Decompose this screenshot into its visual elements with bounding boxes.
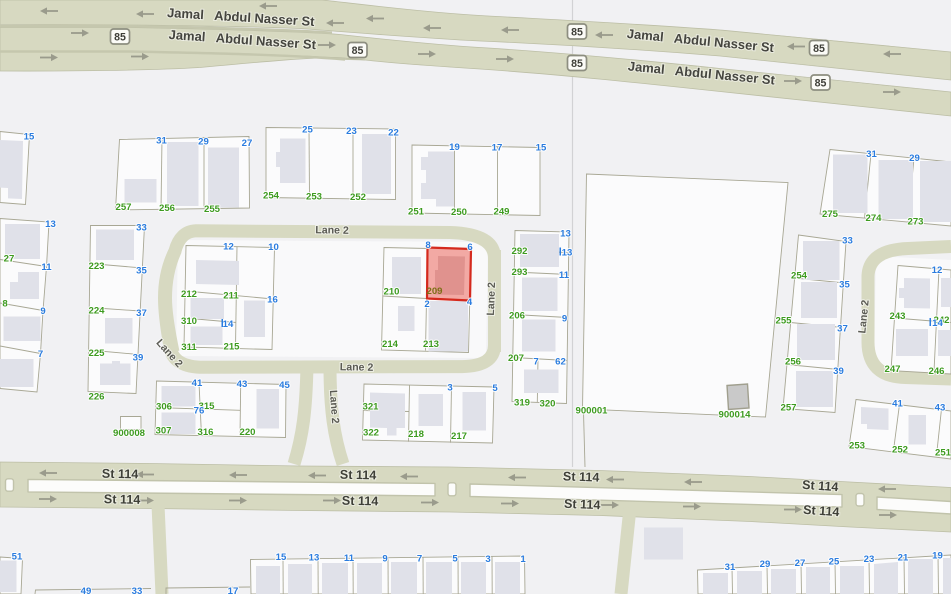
svg-text:293: 293: [511, 267, 527, 278]
svg-text:8: 8: [2, 299, 8, 310]
svg-text:215: 215: [223, 342, 240, 353]
svg-text:23: 23: [346, 126, 357, 137]
svg-text:220: 220: [239, 427, 255, 438]
svg-text:292: 292: [511, 246, 527, 257]
svg-text:35: 35: [136, 266, 147, 277]
svg-text:13: 13: [562, 248, 573, 259]
svg-text:85: 85: [352, 45, 364, 57]
svg-text:41: 41: [892, 399, 903, 410]
svg-text:43: 43: [935, 403, 946, 414]
svg-text:49: 49: [81, 586, 92, 594]
svg-text:218: 218: [408, 429, 425, 440]
svg-text:243: 243: [889, 311, 905, 322]
svg-text:247: 247: [884, 364, 900, 375]
svg-text:14: 14: [932, 318, 943, 329]
svg-text:226: 226: [88, 392, 104, 403]
svg-text:253: 253: [849, 441, 865, 452]
svg-text:21: 21: [898, 553, 909, 564]
svg-text:13: 13: [45, 219, 56, 230]
svg-text:256: 256: [785, 357, 801, 368]
svg-text:45: 45: [279, 380, 290, 391]
svg-text:307: 307: [155, 426, 171, 437]
svg-text:37: 37: [837, 324, 848, 335]
svg-text:16: 16: [267, 295, 278, 306]
svg-text:320: 320: [539, 399, 555, 410]
svg-text:12: 12: [223, 242, 234, 253]
svg-text:29: 29: [909, 153, 920, 164]
svg-text:27: 27: [242, 138, 253, 149]
svg-text:9: 9: [40, 306, 45, 317]
svg-text:St 114: St 114: [104, 492, 141, 507]
svg-text:17: 17: [228, 586, 239, 594]
svg-text:211: 211: [223, 291, 239, 302]
svg-text:Lane 2: Lane 2: [340, 361, 374, 374]
svg-text:85: 85: [571, 58, 583, 70]
svg-text:25: 25: [829, 557, 840, 568]
svg-text:251: 251: [935, 448, 951, 459]
svg-text:St 114: St 114: [803, 503, 840, 520]
svg-text:St 114: St 114: [340, 468, 377, 483]
svg-text:31: 31: [866, 149, 877, 160]
svg-text:19: 19: [449, 142, 460, 153]
svg-text:Lane 2: Lane 2: [327, 390, 341, 424]
svg-text:51: 51: [12, 552, 23, 563]
svg-text:41: 41: [192, 378, 203, 389]
svg-text:39: 39: [133, 353, 144, 364]
svg-text:22: 22: [388, 128, 399, 139]
svg-text:29: 29: [760, 559, 771, 570]
svg-text:62: 62: [555, 357, 566, 368]
svg-text:256: 256: [159, 203, 175, 214]
svg-text:253: 253: [306, 192, 322, 203]
svg-text:311: 311: [181, 342, 197, 353]
svg-text:33: 33: [136, 223, 147, 234]
svg-text:254: 254: [791, 271, 808, 282]
svg-text:85: 85: [114, 31, 126, 43]
svg-text:900008: 900008: [113, 428, 146, 439]
svg-text:207: 207: [508, 353, 524, 364]
svg-text:35: 35: [839, 280, 850, 291]
svg-text:5: 5: [452, 554, 458, 565]
svg-text:14: 14: [223, 319, 234, 330]
svg-text:210: 210: [383, 287, 399, 298]
svg-text:7: 7: [38, 349, 43, 360]
svg-text:25: 25: [302, 125, 313, 136]
svg-text:255: 255: [775, 316, 792, 327]
svg-text:223: 223: [88, 261, 104, 272]
svg-text:Lane 2: Lane 2: [315, 224, 349, 237]
svg-text:225: 225: [88, 348, 105, 359]
svg-text:3: 3: [485, 554, 490, 565]
svg-text:3: 3: [447, 383, 452, 394]
svg-text:321: 321: [362, 402, 379, 413]
svg-text:7: 7: [417, 554, 422, 565]
svg-text:85: 85: [571, 26, 583, 38]
svg-text:316: 316: [197, 427, 213, 438]
svg-text:251: 251: [408, 207, 425, 218]
svg-text:273: 273: [907, 217, 923, 228]
svg-text:2: 2: [424, 299, 429, 310]
svg-text:85: 85: [815, 77, 827, 89]
svg-text:11: 11: [41, 262, 52, 273]
svg-text:322: 322: [363, 428, 379, 439]
svg-text:257: 257: [115, 202, 131, 213]
svg-text:Lane 2: Lane 2: [485, 282, 498, 316]
svg-text:8: 8: [425, 240, 431, 251]
svg-text:85: 85: [813, 43, 825, 55]
svg-text:St 114: St 114: [564, 497, 601, 513]
svg-text:255: 255: [204, 204, 221, 215]
svg-text:31: 31: [156, 136, 167, 147]
svg-text:319: 319: [514, 398, 530, 409]
svg-text:310: 310: [181, 316, 197, 327]
svg-text:252: 252: [350, 192, 366, 203]
svg-text:10: 10: [268, 242, 279, 253]
svg-text:7: 7: [533, 357, 538, 368]
svg-text:27: 27: [4, 254, 15, 265]
svg-text:33: 33: [132, 586, 143, 594]
svg-text:209: 209: [426, 286, 442, 297]
svg-text:254: 254: [263, 191, 280, 202]
svg-text:39: 39: [833, 366, 844, 377]
svg-text:213: 213: [423, 339, 439, 350]
svg-text:4: 4: [467, 297, 473, 308]
svg-text:246: 246: [928, 366, 944, 377]
svg-text:249: 249: [493, 207, 509, 218]
svg-text:St 114: St 114: [342, 494, 379, 509]
svg-text:15: 15: [276, 552, 287, 563]
svg-text:274: 274: [865, 213, 882, 224]
svg-text:306: 306: [156, 402, 172, 413]
svg-text:St 114: St 114: [802, 478, 839, 495]
svg-text:13: 13: [309, 553, 320, 564]
svg-text:5: 5: [492, 383, 498, 394]
svg-text:214: 214: [382, 339, 399, 350]
svg-text:13: 13: [560, 229, 571, 240]
svg-text:29: 29: [198, 137, 209, 148]
svg-text:31: 31: [725, 562, 736, 573]
svg-text:33: 33: [842, 236, 853, 247]
svg-text:250: 250: [451, 207, 467, 218]
svg-text:15: 15: [24, 132, 35, 143]
svg-text:11: 11: [559, 270, 570, 281]
svg-text:217: 217: [451, 431, 467, 442]
svg-text:900001: 900001: [575, 406, 608, 417]
svg-text:37: 37: [136, 308, 147, 319]
svg-text:212: 212: [181, 289, 197, 300]
svg-text:15: 15: [536, 143, 547, 154]
svg-text:27: 27: [795, 558, 806, 569]
svg-text:St 114: St 114: [563, 469, 600, 484]
svg-text:19: 19: [932, 551, 943, 562]
svg-text:23: 23: [864, 554, 875, 565]
svg-text:11: 11: [344, 553, 355, 564]
svg-text:275: 275: [822, 209, 839, 220]
svg-text:257: 257: [780, 403, 796, 414]
svg-text:900014: 900014: [718, 410, 751, 421]
svg-text:9: 9: [562, 314, 567, 325]
svg-text:1: 1: [520, 554, 526, 565]
svg-text:17: 17: [492, 143, 503, 154]
svg-text:252: 252: [892, 445, 908, 456]
svg-text:St 114: St 114: [102, 467, 139, 482]
svg-text:76: 76: [194, 406, 205, 417]
svg-text:224: 224: [88, 306, 105, 317]
svg-text:206: 206: [509, 311, 525, 322]
svg-text:43: 43: [237, 379, 248, 390]
svg-text:9: 9: [382, 554, 387, 565]
svg-text:6: 6: [467, 242, 472, 253]
svg-text:12: 12: [932, 265, 943, 276]
